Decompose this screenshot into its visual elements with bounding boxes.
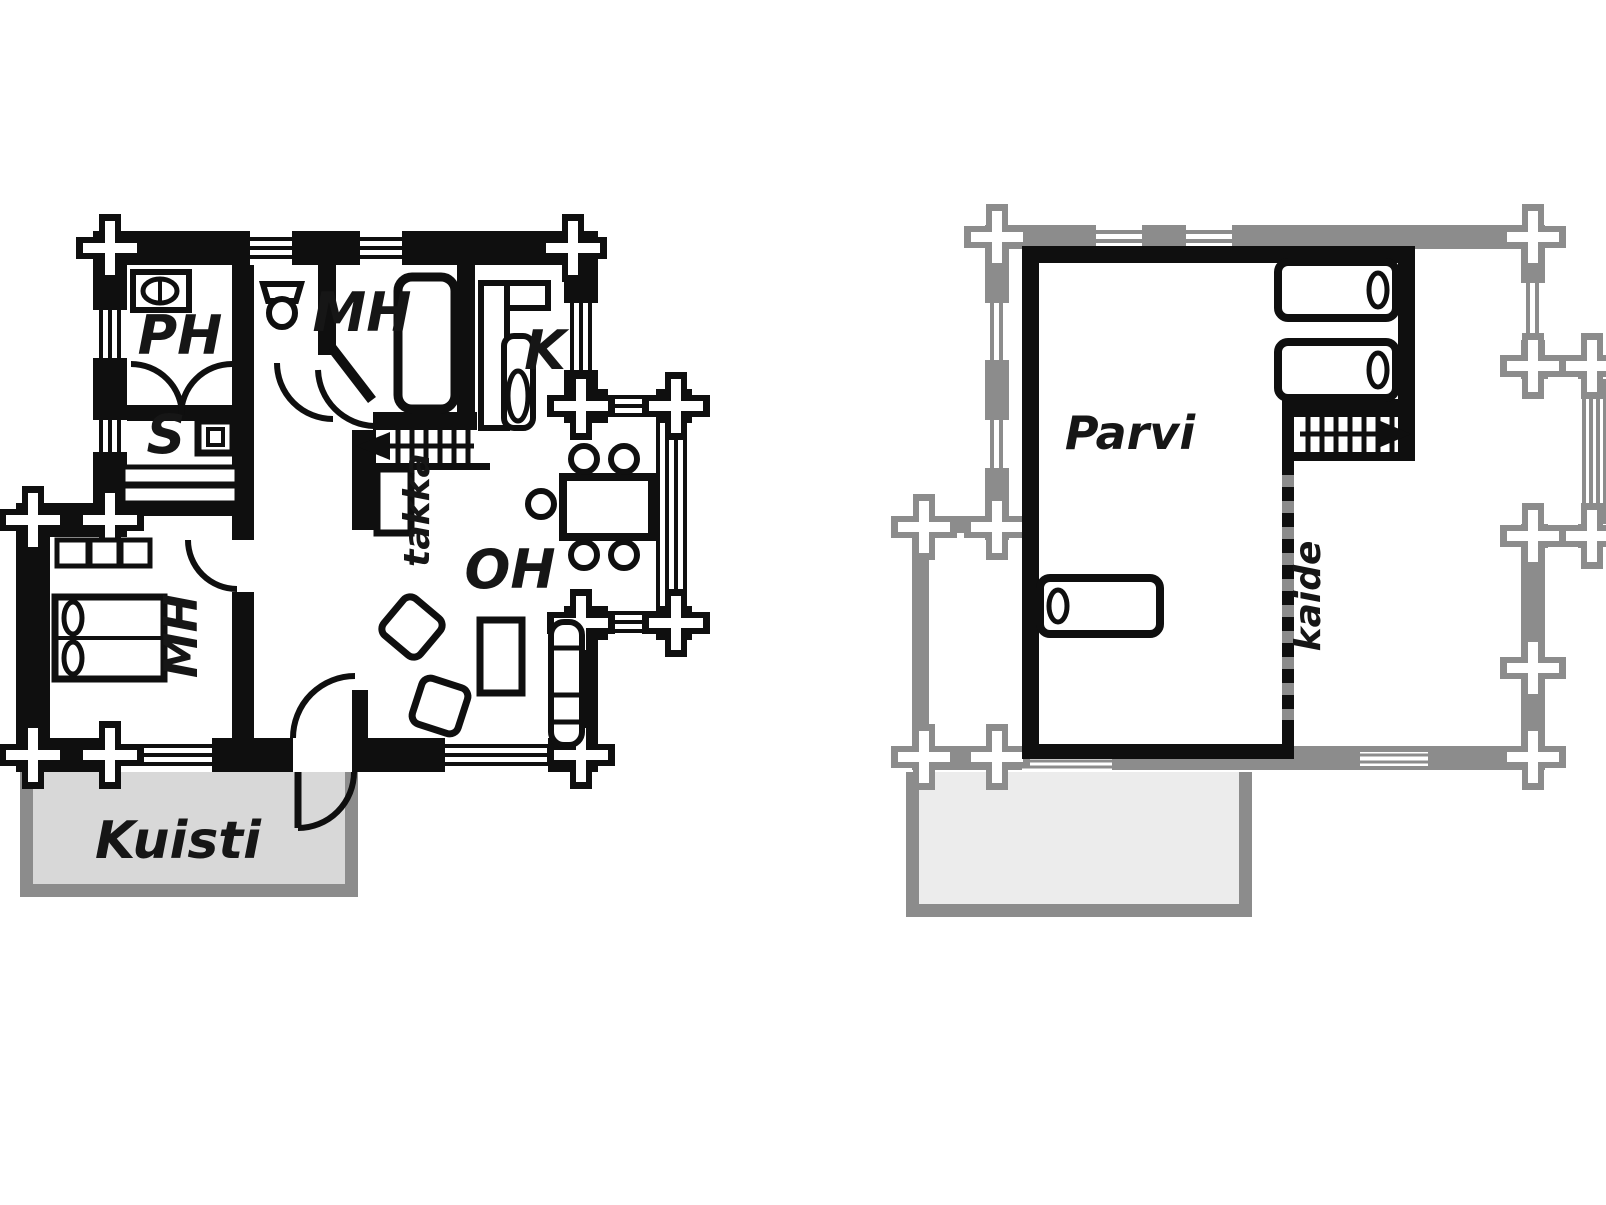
window	[564, 303, 598, 370]
bedroom-side-door	[188, 540, 237, 589]
chair	[611, 542, 637, 568]
window	[445, 738, 548, 772]
label-bedroom-top: MH	[313, 281, 412, 344]
pillow	[64, 642, 82, 674]
floorplan-image: PH S MH K OH takka MH Kuisti	[0, 0, 1606, 1205]
upper-floor-plan: Parvi kaide	[891, 204, 1606, 917]
upper-gray-windows	[985, 225, 1545, 770]
ground-floor-plan: PH S MH K OH takka MH Kuisti	[0, 214, 710, 897]
label-washroom: PH	[138, 304, 223, 367]
pillow	[1369, 353, 1387, 387]
window	[93, 310, 127, 358]
lower-floor-outline	[891, 204, 1606, 790]
upper-porch	[906, 772, 1252, 917]
label-fireplace: takka	[397, 453, 438, 567]
bed-side-bedroom	[55, 597, 164, 679]
label-sauna: S	[147, 403, 186, 466]
loft-stairs	[1282, 399, 1415, 461]
label-living-room: OH	[464, 538, 555, 601]
wc-toilet	[263, 284, 301, 327]
armchair	[410, 676, 470, 736]
bay-railing	[658, 423, 685, 606]
label-railing: kaide	[1288, 541, 1329, 652]
bedroom-top-door-leaf	[332, 348, 372, 400]
pillow	[1049, 590, 1067, 622]
dining-table	[563, 477, 652, 537]
entrance-doorway	[293, 738, 352, 772]
label-loft: Parvi	[1065, 406, 1196, 460]
entrance-door-inner-arc	[293, 676, 355, 738]
upper-bay-windows	[1548, 355, 1578, 548]
sauna-stove	[198, 421, 233, 453]
chair	[571, 542, 597, 568]
window	[250, 231, 292, 265]
pillow	[1369, 273, 1387, 307]
label-bedroom-side: MH	[154, 594, 208, 678]
loft-walls	[1022, 246, 1415, 759]
floorplan-svg: PH S MH K OH takka MH Kuisti	[0, 0, 1606, 1205]
sofa	[551, 622, 582, 745]
pillow	[64, 602, 82, 634]
label-kitchen: K	[524, 319, 570, 382]
chair	[571, 446, 597, 472]
sauna-benches	[123, 467, 237, 503]
armchair	[378, 593, 446, 661]
window	[93, 420, 127, 452]
window	[360, 231, 402, 265]
coffee-table	[480, 620, 522, 693]
upper-bay-railing	[1584, 379, 1605, 524]
side-bedroom-window-sill	[57, 540, 150, 566]
chair	[611, 446, 637, 472]
label-porch: Kuisti	[95, 811, 262, 871]
chair	[528, 491, 554, 517]
upper-porch-floor	[918, 772, 1240, 905]
